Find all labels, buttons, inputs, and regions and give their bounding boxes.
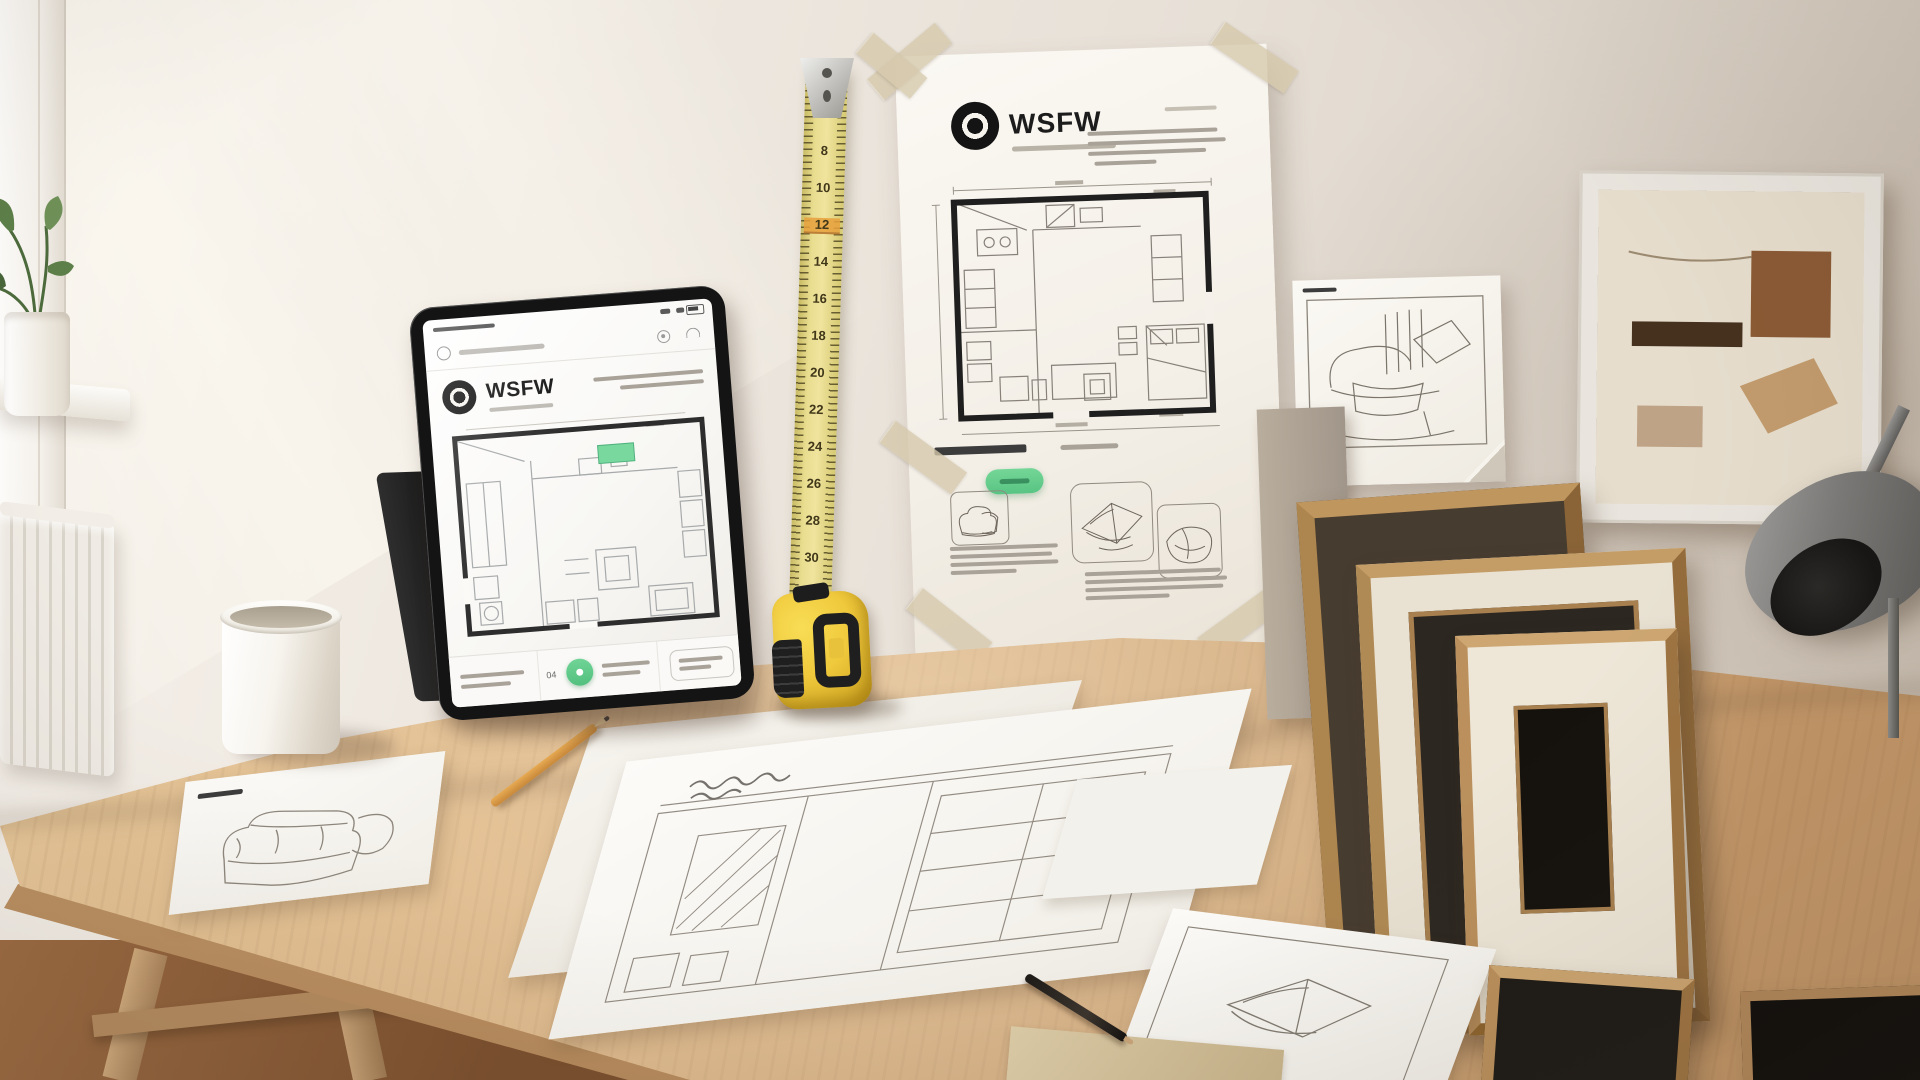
poster-sketch-sofa <box>951 491 1009 545</box>
poster-caption-line <box>950 551 1052 559</box>
tablet-device: WSFW <box>408 284 756 722</box>
green-action-button[interactable] <box>565 658 594 687</box>
clip-hole <box>822 68 832 78</box>
poster-caption-line <box>1086 593 1170 600</box>
button-text-bar <box>679 655 723 662</box>
headset-icon[interactable] <box>686 327 701 338</box>
poster-pill-text-bar <box>999 478 1029 484</box>
wall-art-mat <box>1595 190 1864 507</box>
person-icon[interactable] <box>657 330 671 344</box>
bottom-text-bar <box>461 681 511 689</box>
ruler-number: 28 <box>791 501 834 539</box>
bottom-outline-button[interactable] <box>669 646 735 682</box>
poster-sketch-couch <box>1071 482 1154 563</box>
bottom-text-bar <box>602 670 640 677</box>
plant-pot <box>4 312 70 416</box>
poster-note-line <box>1165 105 1217 111</box>
poster-dim-label <box>1060 443 1118 450</box>
poster-logo-bullseye <box>950 101 1000 151</box>
app-logo-bullseye <box>441 379 478 416</box>
wall-art-print <box>1595 190 1864 507</box>
workspace-scene: WSFW <box>0 0 1920 1080</box>
lamp-stem <box>1888 598 1899 738</box>
poster-caption-line <box>951 569 1017 575</box>
tablet-screen[interactable]: WSFW <box>422 298 742 708</box>
search-icon <box>436 346 451 361</box>
battery-icon <box>686 304 705 315</box>
wall-note-curl <box>1448 425 1505 482</box>
frame-window <box>1514 703 1615 914</box>
tablet-floorplan[interactable] <box>435 402 732 653</box>
ruler-number: 20 <box>796 353 839 391</box>
ruler-number: 14 <box>799 242 842 280</box>
button-text-bar <box>679 664 711 670</box>
clip-hole <box>823 90 831 102</box>
poster-sketch-card <box>1070 481 1155 564</box>
mug-interior <box>230 606 332 628</box>
plant-leaves <box>0 196 88 331</box>
wifi-icon <box>676 307 684 313</box>
ruler-number: 12 <box>800 205 843 243</box>
poster-text-line <box>1087 127 1217 136</box>
ruler-number: 26 <box>792 464 835 502</box>
bottom-text-bar <box>602 660 650 668</box>
ruler-number: 10 <box>802 168 845 206</box>
wall-art-frame <box>1576 170 1884 525</box>
signal-icon <box>660 308 670 314</box>
poster-caption-line <box>1085 584 1223 593</box>
app-tagline-bar <box>489 403 553 412</box>
ruler-number: 8 <box>803 131 846 169</box>
poster-sketch-card <box>950 490 1010 546</box>
tape-measure <box>771 590 873 711</box>
poster-text-line <box>1088 148 1206 156</box>
poster-section-label <box>934 444 1026 455</box>
ruler-number: 24 <box>793 427 836 465</box>
sketch-paper-sliver <box>1042 765 1292 899</box>
tape-measure-grip <box>771 639 804 698</box>
tape-measure-ring <box>812 612 862 688</box>
bottom-section-left[interactable] <box>449 651 542 708</box>
action-number: 04 <box>546 670 557 681</box>
wall-poster: WSFW <box>895 44 1288 657</box>
ruler-number: 30 <box>790 538 833 576</box>
search-placeholder-bar <box>459 343 545 355</box>
radiator <box>0 508 114 777</box>
corner-frame <box>1740 985 1920 1080</box>
ruler-number: 16 <box>798 279 841 317</box>
poster-text-line <box>1088 137 1226 146</box>
status-text-bar <box>433 323 495 332</box>
poster-caption-line <box>1085 575 1227 584</box>
small-frame-bottom <box>1479 965 1694 1080</box>
ruler-number: 22 <box>795 390 838 428</box>
mug <box>222 612 340 754</box>
poster-text-line <box>1094 160 1156 166</box>
poster-sketch-cushion <box>1157 504 1221 578</box>
bottom-section-center: 04 <box>536 642 661 701</box>
app-header-text <box>620 379 704 390</box>
ruler-number: 18 <box>797 316 840 354</box>
bottom-text-bar <box>460 670 524 679</box>
poster-caption-line <box>950 559 1058 567</box>
app-brand-name: WSFW <box>485 375 555 404</box>
poster-floorplan <box>927 173 1238 445</box>
action-dot-icon <box>576 668 584 676</box>
